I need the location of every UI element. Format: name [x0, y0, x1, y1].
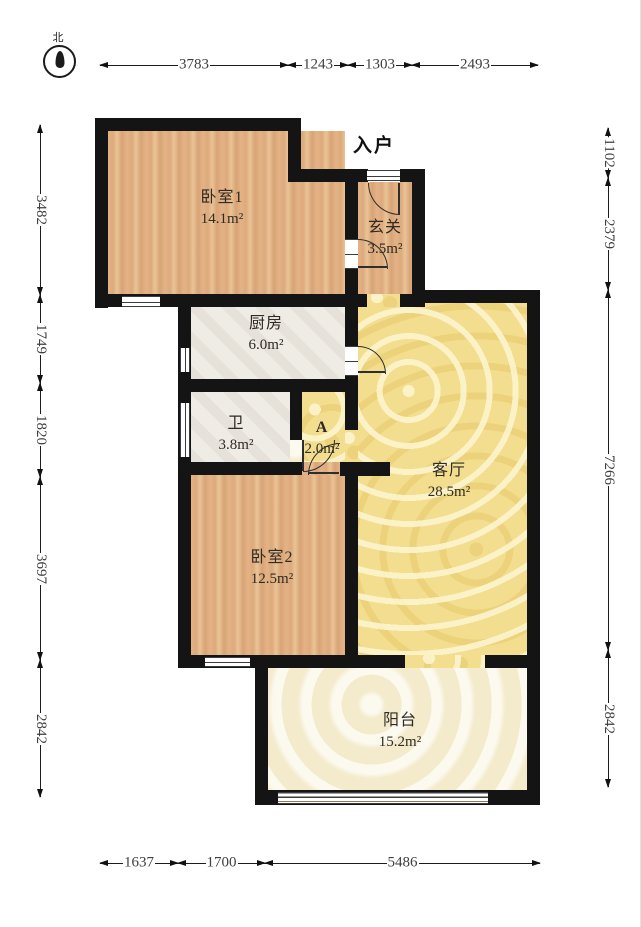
wall — [345, 169, 358, 241]
room-area: 3.5m² — [368, 239, 403, 259]
wall — [345, 462, 358, 655]
hallway-door-leaf — [358, 266, 387, 268]
room-area: 6.0m² — [249, 335, 284, 355]
dimension-top: 2493 — [412, 65, 538, 66]
dimension-left: 1820 — [40, 383, 41, 477]
opening-bathroom-door — [290, 440, 302, 462]
dimension-value: 1749 — [32, 323, 49, 355]
wall — [527, 290, 540, 805]
wall — [485, 655, 540, 668]
dimension-value: 3697 — [32, 553, 49, 585]
bedroom2-door-leaf — [308, 472, 339, 474]
dimension-right: 7266 — [608, 290, 609, 650]
window — [180, 403, 190, 457]
room-area: 2.0m² — [305, 439, 340, 459]
room-label-balcony: 阳台 15.2m² — [379, 710, 421, 752]
room-name: 卧室1 — [200, 187, 243, 209]
dimension-value: 2493 — [459, 57, 491, 74]
room-name: 玄关 — [368, 217, 403, 239]
dimension-value: 2379 — [600, 218, 617, 250]
wall — [412, 169, 425, 303]
dimension-value: 2842 — [32, 713, 49, 745]
opening-hallway-living — [367, 294, 400, 307]
dimension-bottom: 1637 — [100, 863, 178, 864]
wall — [255, 655, 268, 805]
dimension-right: 2379 — [608, 178, 609, 290]
room-area: 3.8m² — [219, 435, 254, 455]
wall — [178, 462, 302, 475]
room-label-bedroom2: 卧室2 12.5m² — [250, 547, 293, 589]
wall — [345, 294, 358, 346]
wall — [178, 379, 358, 392]
room-label-hallway: 玄关 3.5m² — [368, 217, 403, 259]
wall — [95, 118, 108, 308]
room-label-corridor: A 2.0m² — [305, 417, 340, 459]
room-name: 阳台 — [379, 710, 421, 732]
entry-label: 入户 — [353, 131, 395, 158]
window — [122, 296, 160, 307]
wall — [345, 392, 358, 430]
dimension-left: 3697 — [40, 477, 41, 660]
window — [205, 657, 250, 667]
room-name: 卧室2 — [250, 547, 293, 569]
dimension-left: 2842 — [40, 660, 41, 797]
compass-icon — [43, 45, 76, 78]
dimension-value: 3783 — [178, 57, 210, 74]
dimension-value: 1102 — [600, 137, 617, 168]
room-area: 15.2m² — [379, 732, 421, 752]
room-label-bedroom1: 卧室1 14.1m² — [200, 187, 243, 229]
dimension-right: 1102 — [608, 128, 609, 178]
dimension-value: 7266 — [600, 454, 617, 486]
wall — [412, 290, 540, 303]
dimension-top: 1303 — [348, 65, 412, 66]
dimension-value: 2842 — [600, 703, 617, 735]
window — [180, 348, 190, 372]
north-label: 北 — [53, 29, 64, 45]
entry-threshold — [367, 170, 400, 181]
room-name: 厨房 — [249, 313, 284, 335]
dimension-value: 5486 — [387, 855, 419, 872]
room-area: 12.5m² — [250, 569, 293, 589]
wall — [95, 118, 301, 131]
dimension-bottom: 5486 — [265, 863, 540, 864]
kitchen-door-leaf — [358, 371, 385, 373]
room-area: 14.1m² — [200, 209, 243, 229]
balcony-window — [278, 792, 488, 804]
entry-door-leaf — [398, 183, 400, 214]
room-area: 28.5m² — [428, 482, 470, 502]
opening-living-balcony — [405, 655, 485, 668]
dimension-right: 2842 — [608, 650, 609, 787]
room-name: 卫 — [219, 413, 254, 435]
room-label-kitchen: 厨房 6.0m² — [249, 313, 284, 355]
room-name: 客厅 — [428, 460, 470, 482]
door-jamb — [345, 346, 358, 376]
room-label-bathroom: 卫 3.8m² — [219, 413, 254, 455]
dimension-left: 1749 — [40, 295, 41, 383]
compass-needle-icon — [55, 51, 64, 68]
wall — [290, 392, 302, 440]
dimension-value: 1637 — [123, 855, 155, 872]
dimension-value: 3482 — [32, 194, 49, 226]
opening-corridor-living — [345, 430, 358, 462]
dimension-value: 1820 — [32, 414, 49, 446]
door-jamb — [345, 239, 358, 269]
dimension-top: 1243 — [288, 65, 348, 66]
floor-plan: 北 入 — [0, 0, 641, 927]
dimension-value: 1700 — [206, 855, 238, 872]
dimension-left: 3482 — [40, 125, 41, 295]
dimension-top: 3783 — [100, 65, 288, 66]
dimension-value: 1243 — [302, 57, 334, 74]
room-label-living: 客厅 28.5m² — [428, 460, 470, 502]
room-name: A — [305, 417, 340, 439]
dimension-value: 1303 — [364, 57, 396, 74]
dimension-bottom: 1700 — [178, 863, 265, 864]
